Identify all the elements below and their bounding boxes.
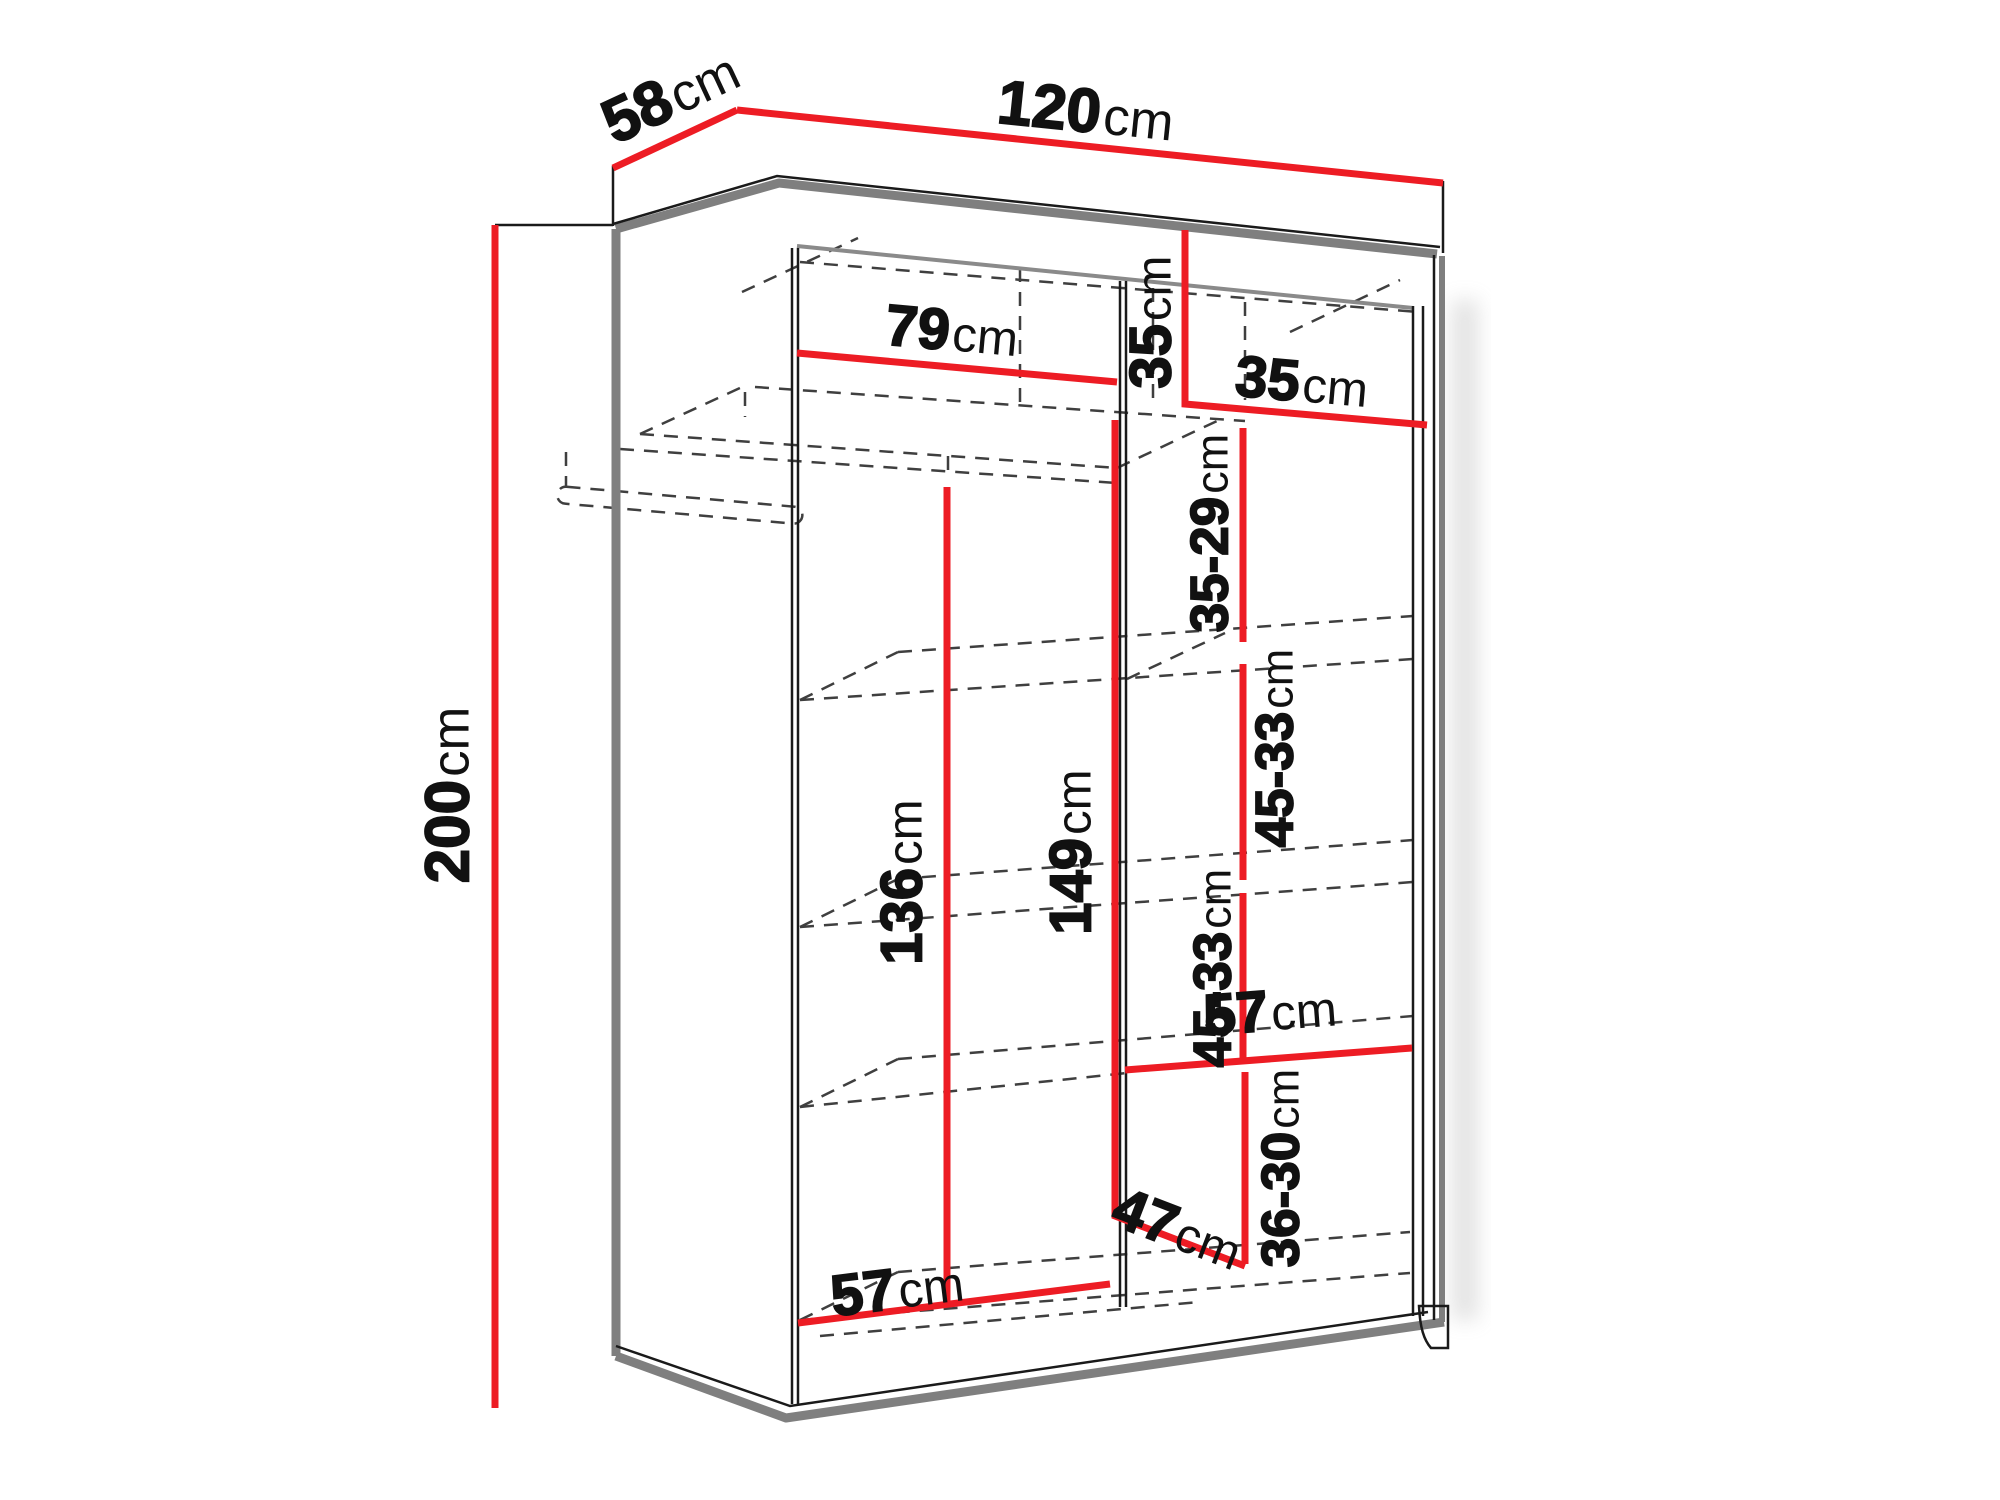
dim-label-bottom-width-left: 57cm — [827, 1248, 967, 1329]
dashed-shelf2-left-side — [800, 652, 898, 700]
dim-label-top-section-height: 35cm — [1118, 255, 1183, 388]
dim-label-shelf-width-right: 57cm — [1201, 973, 1339, 1048]
dim-label-top-shelf-width: 79cm — [883, 292, 1022, 369]
dashed-top-shelf-underside — [620, 449, 1117, 483]
dim-label-shelf-gap-upper: 45-33cm — [1246, 649, 1305, 848]
cabinet-shadow — [1452, 300, 1478, 1320]
dashed-shelf2-back — [898, 616, 1413, 652]
dim-label-shelf-gap-top: 35-29cm — [1181, 434, 1240, 633]
dashed-shelf4-front — [800, 1073, 1127, 1107]
dim-label-height: 200cm — [414, 707, 483, 884]
dim-label-top-section-width: 35cm — [1233, 344, 1371, 420]
dashed-shelf4-left-side — [800, 1059, 898, 1107]
dashed-top-shelf-front-edge — [640, 434, 1117, 468]
dim-label-divider-height: 149cm — [1038, 769, 1103, 935]
dashed-top-shelf-left-side — [640, 387, 742, 434]
dashed-shelf3-back — [898, 840, 1413, 879]
wardrobe-dimension-diagram: 58cm 120cm 200cm 79cm 35cm 35cm 35-29cm … — [0, 0, 2000, 1500]
dashed-top-shelf-back-edge — [755, 387, 1245, 421]
diagram-canvas: 58cm 120cm 200cm 79cm 35cm 35cm 35-29cm … — [0, 0, 2000, 1500]
dim-label-hanging-height: 136cm — [869, 799, 934, 965]
dashed-shelf2-front — [800, 659, 1413, 700]
hanging-rod — [557, 486, 804, 524]
dim-line-shelf-width-57 — [1125, 1048, 1412, 1070]
body-top-edge — [616, 183, 1437, 254]
floor-front-thin-edge — [616, 1312, 1428, 1406]
dim-label-bottom-section-height: 36-30cm — [1252, 1069, 1311, 1268]
